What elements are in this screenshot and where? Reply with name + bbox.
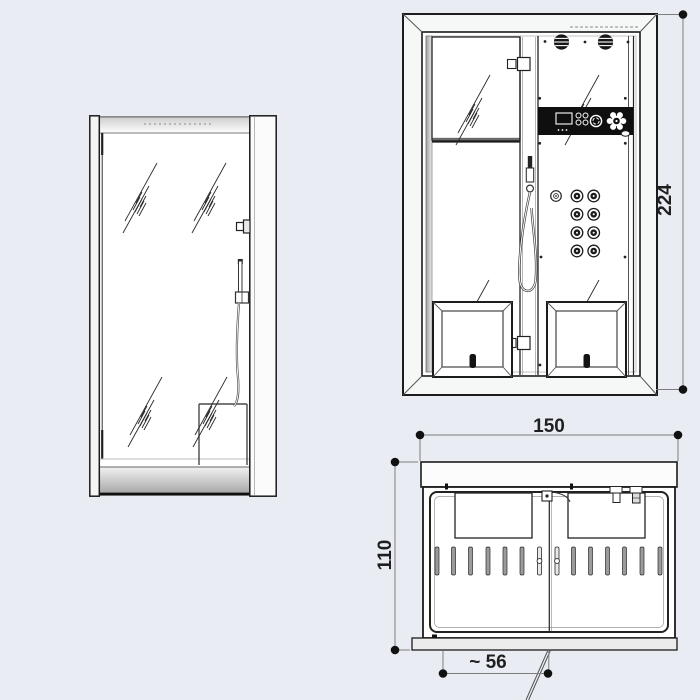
- seat-slot: [584, 354, 591, 368]
- side-elevation-view: [89, 115, 277, 497]
- side-glass-panel: [99, 117, 250, 495]
- body-jet: [571, 190, 583, 202]
- dimension-label-height: 224: [655, 170, 677, 230]
- seat-right: [547, 302, 626, 377]
- right-post: [250, 116, 276, 496]
- plan-back-channel: [421, 462, 677, 487]
- dimension-label-door-opening: ~ 56: [453, 652, 523, 674]
- top-plan-view: [378, 420, 700, 700]
- body-jet: [571, 209, 583, 221]
- body-jet: [571, 227, 583, 239]
- door-hinge-top: [508, 58, 531, 71]
- body-jet: [571, 245, 583, 257]
- speaker-left-icon: [554, 34, 569, 49]
- plan-front-threshold: [412, 638, 677, 650]
- door-handle-side: [237, 220, 251, 233]
- left-post: [90, 116, 100, 496]
- drawing-canvas: 150 224 110 ~ 56: [0, 0, 700, 700]
- speaker-right-icon: [598, 34, 613, 49]
- seat-left: [433, 302, 512, 377]
- body-jet: [588, 209, 600, 221]
- top-header-profile: [99, 117, 250, 133]
- dimension-label-width: 150: [519, 416, 579, 438]
- body-jet: [588, 190, 600, 202]
- seat-slot: [470, 354, 477, 368]
- plan-seat-left: [455, 493, 532, 538]
- body-jet: [588, 227, 600, 239]
- steam-outlet: [621, 131, 630, 136]
- body-jet: [588, 245, 600, 257]
- dimension-label-depth: 110: [375, 525, 397, 585]
- body-jet-small: [551, 191, 562, 202]
- control-panel: [538, 107, 633, 136]
- door-seal-strip: [426, 36, 432, 372]
